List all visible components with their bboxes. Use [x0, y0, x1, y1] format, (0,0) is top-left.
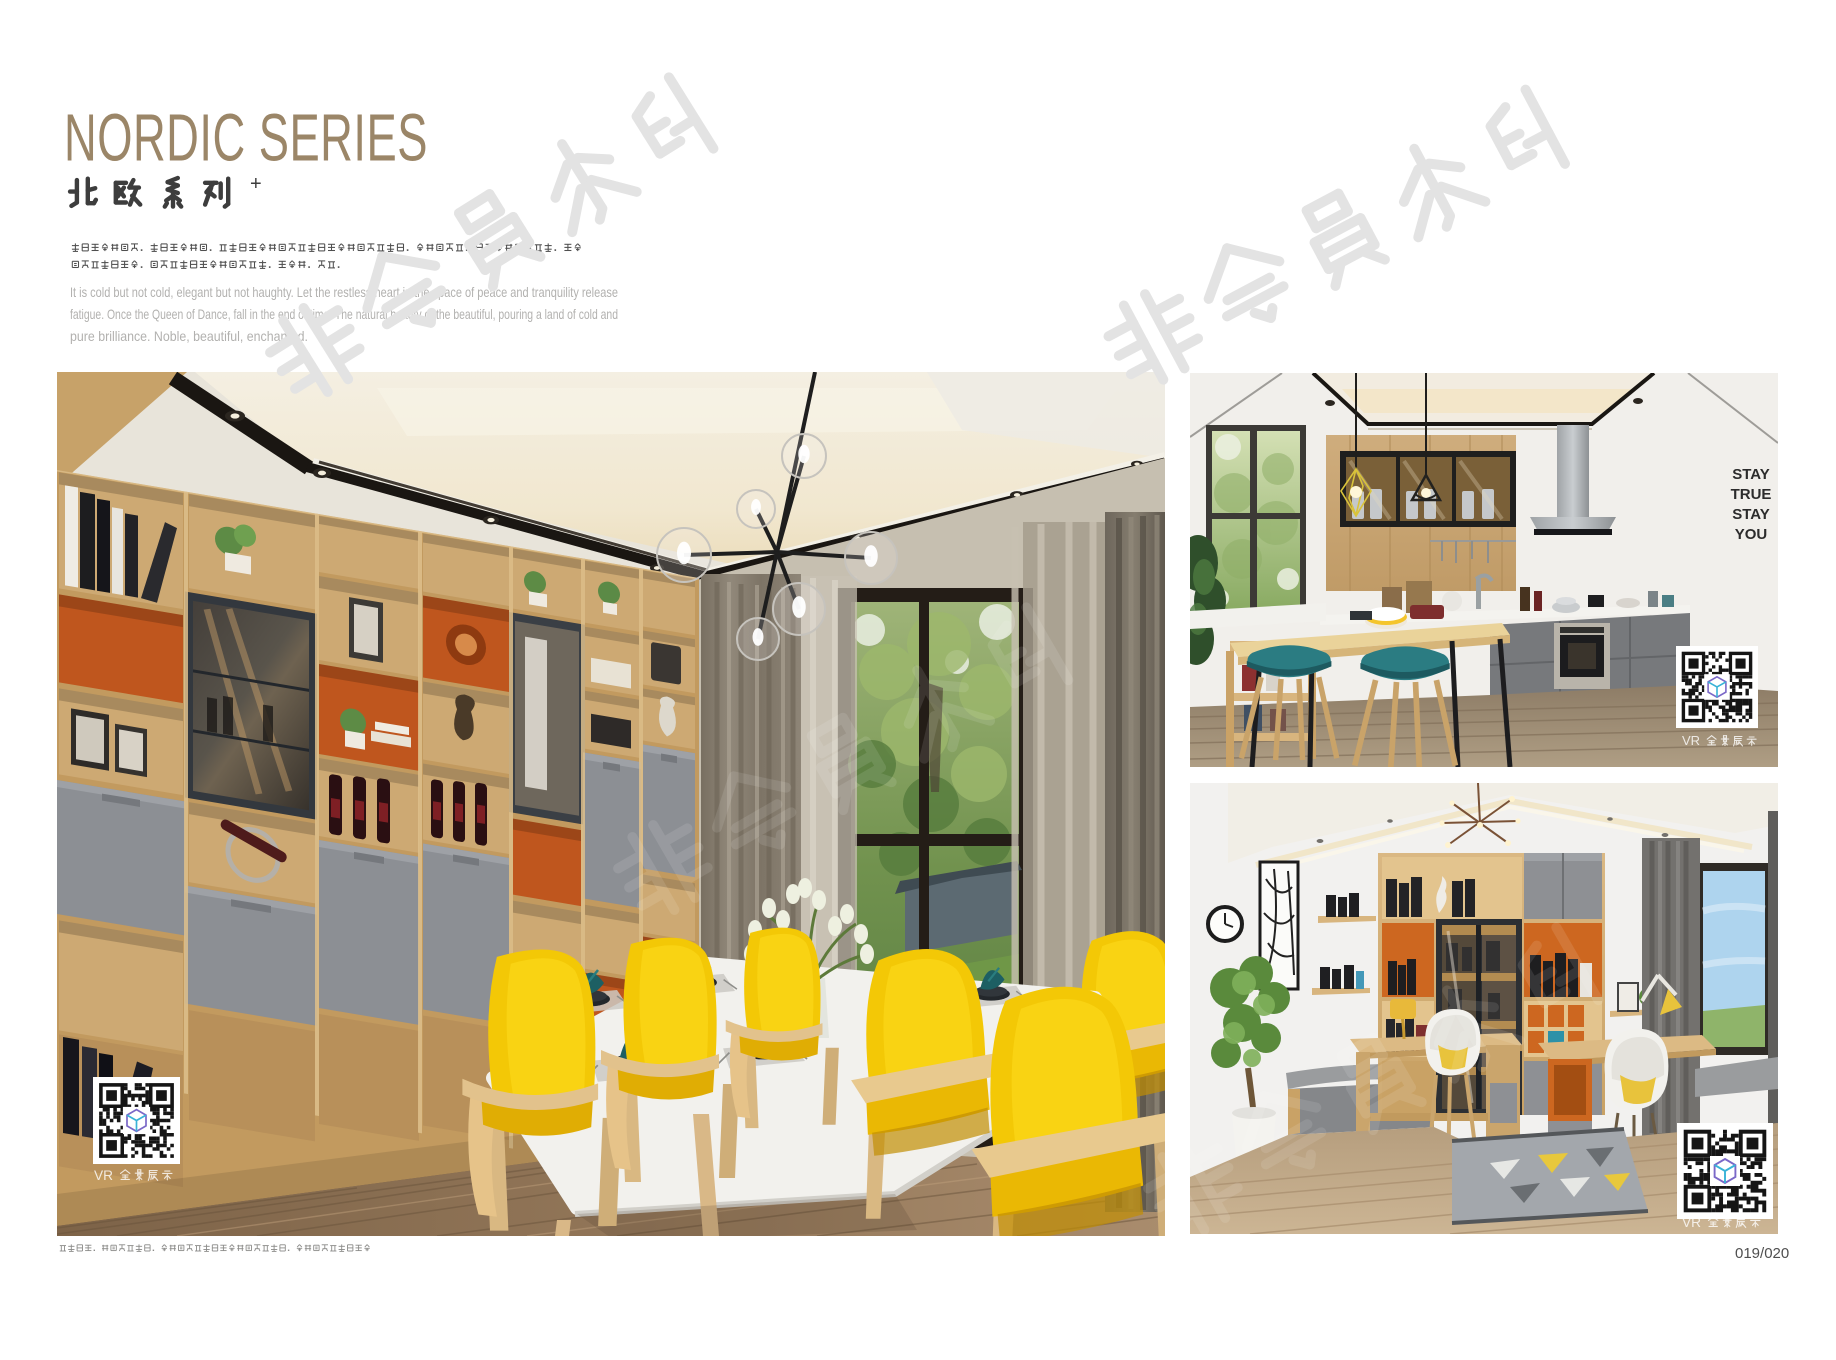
svg-text:TRUE: TRUE: [1731, 486, 1772, 503]
svg-text:VR: VR: [1682, 1215, 1701, 1230]
svg-text:STAY: STAY: [1732, 506, 1770, 523]
svg-text:STAY: STAY: [1732, 466, 1770, 483]
svg-text:VR: VR: [94, 1168, 113, 1183]
svg-text:YOU: YOU: [1735, 526, 1768, 543]
svg-text:VR: VR: [1682, 733, 1700, 748]
